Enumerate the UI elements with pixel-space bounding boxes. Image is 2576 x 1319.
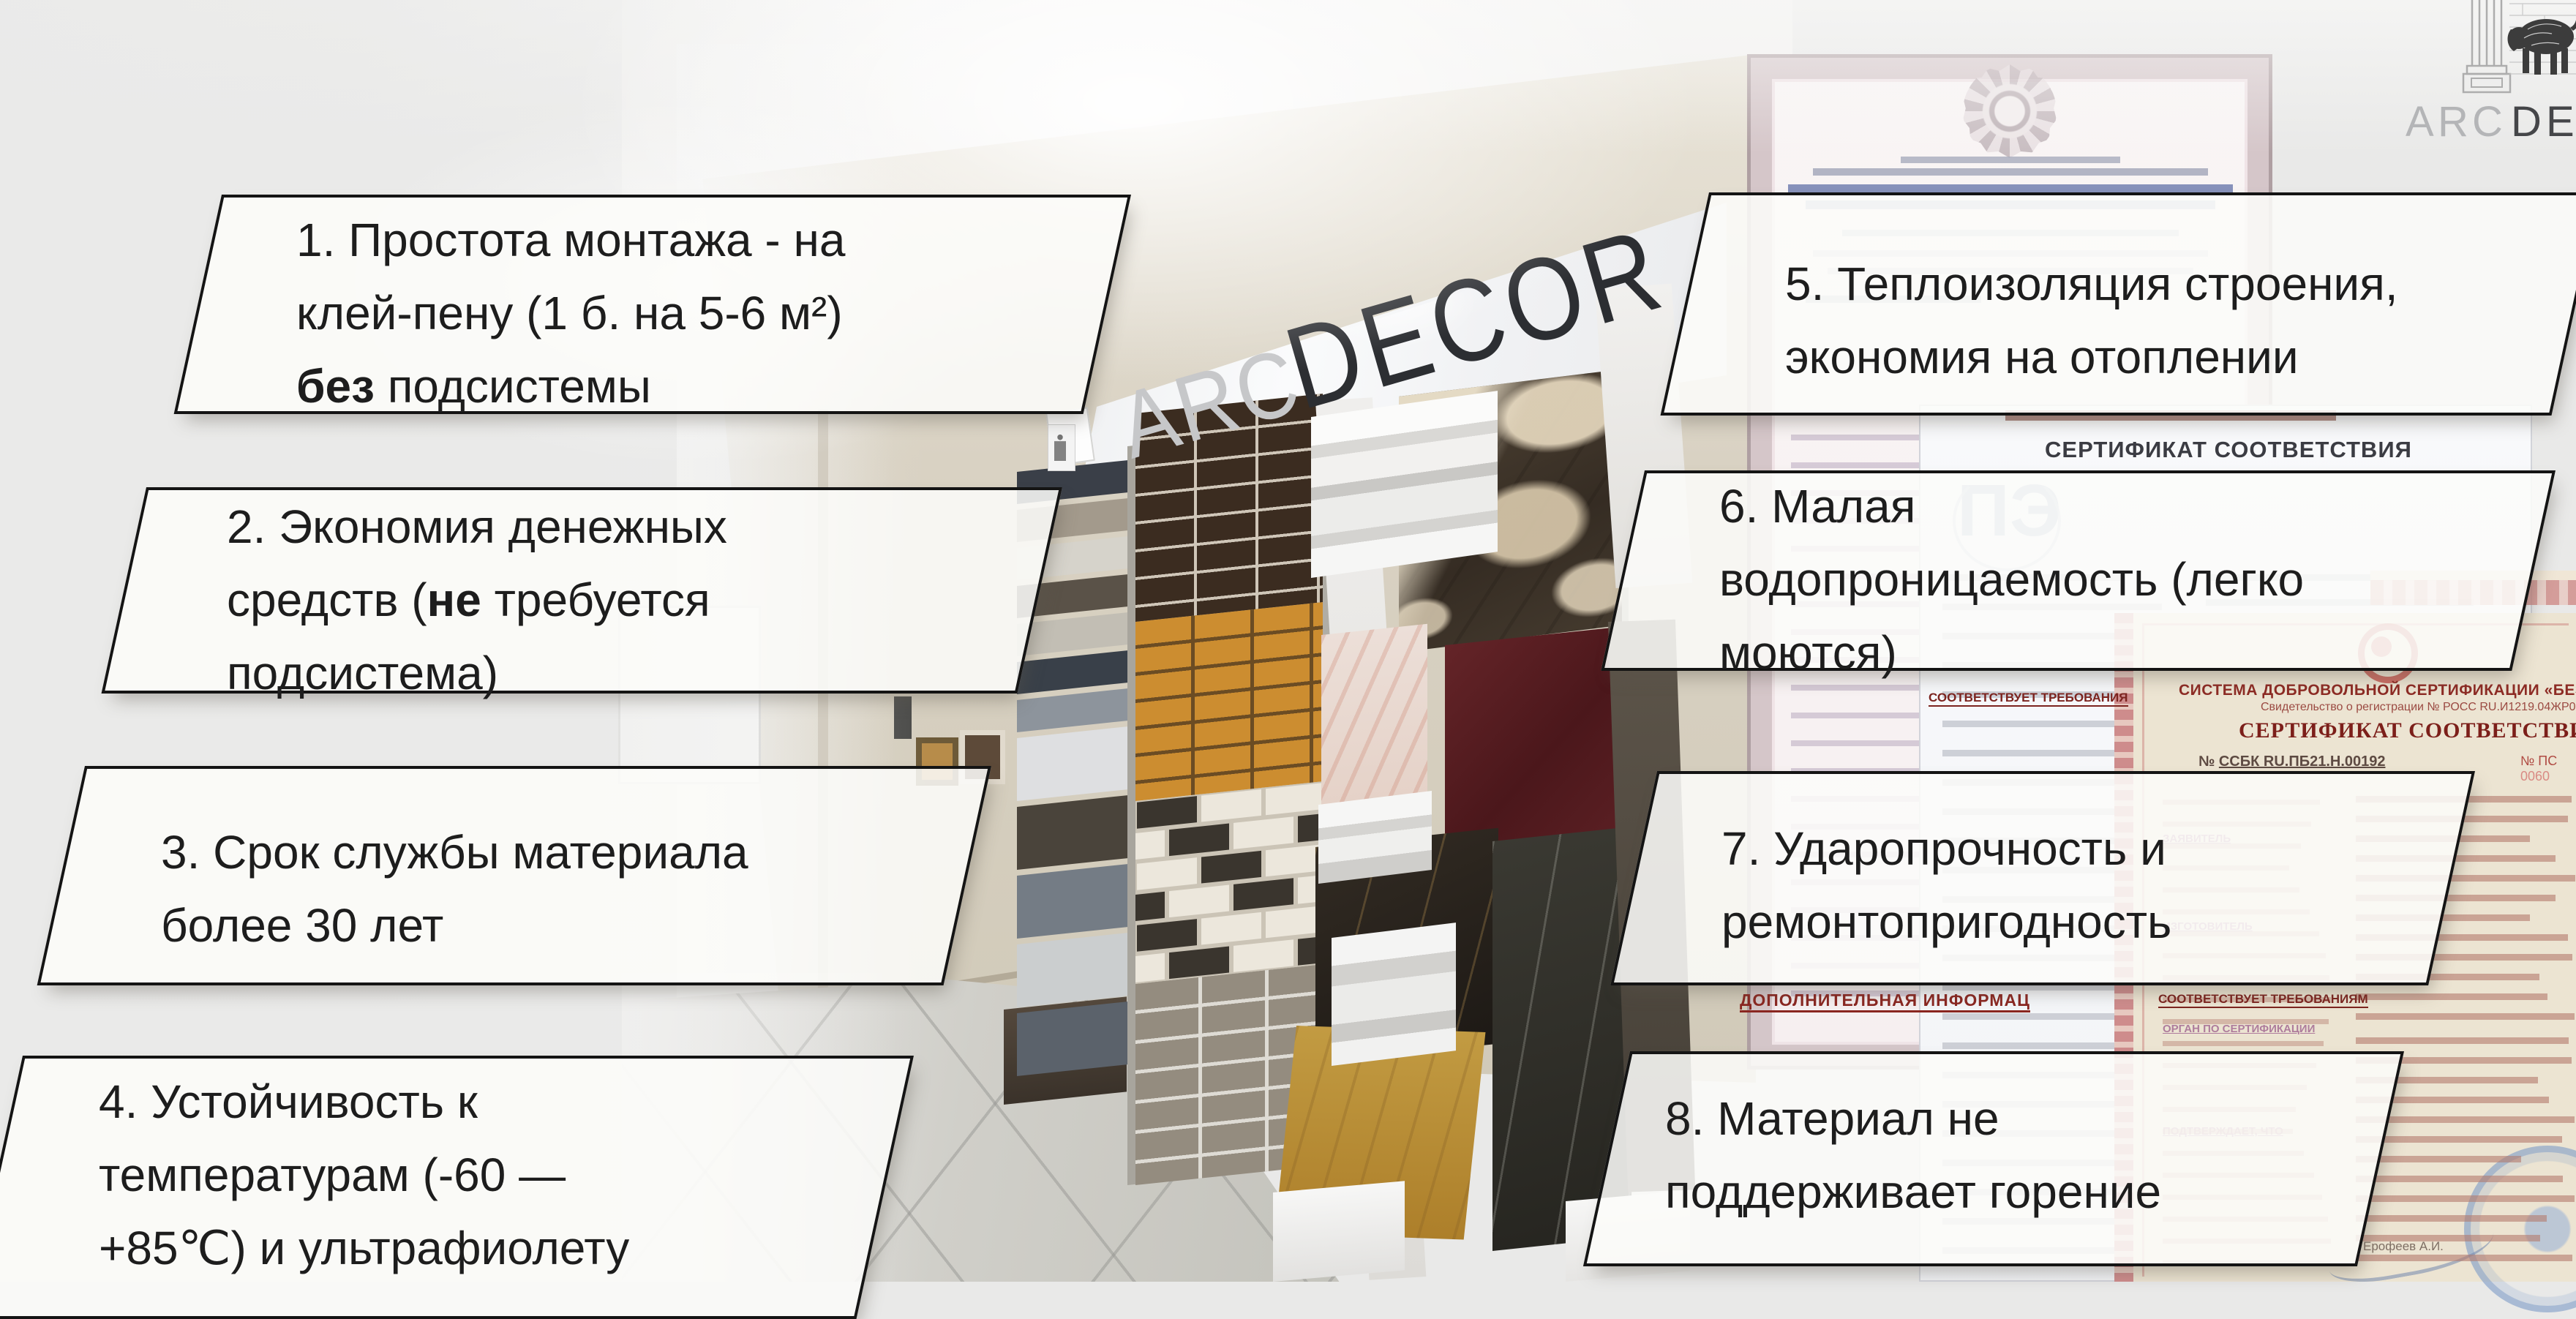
svg-text:R: R [2438, 98, 2468, 146]
svg-text:E: E [2546, 98, 2575, 146]
svg-text:C: C [2472, 98, 2503, 146]
svg-text:D: D [2511, 98, 2542, 146]
svg-text:A: A [2406, 98, 2434, 146]
